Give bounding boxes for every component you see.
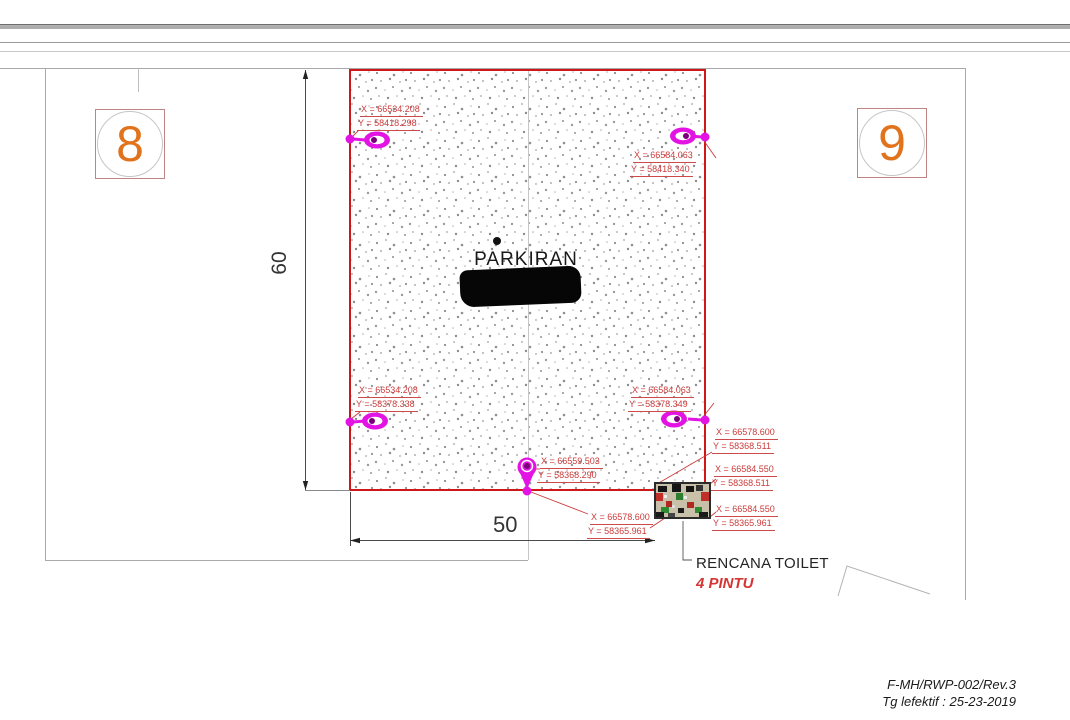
- toilet-plan: [655, 483, 710, 518]
- coord-label-toilet-top-left: X = 66578.600 Y = 58368.511: [712, 428, 778, 456]
- dimension-width-label: 50: [493, 512, 517, 538]
- reference-dot: [493, 237, 501, 245]
- coord-x: X = 66559.503: [540, 457, 603, 469]
- coord-x: X = 66584.063: [631, 386, 694, 398]
- coord-y: Y = 58368.290: [537, 471, 600, 483]
- doc-code: F-MH/RWP-002/Rev.3: [866, 677, 1016, 694]
- coord-y: Y = 58378.338: [355, 400, 418, 412]
- coord-label-parking-bottom-right: X = 66584.063 Y = 58378.349: [628, 386, 694, 414]
- coord-x: X = 66534.208: [360, 105, 423, 117]
- parcel-number-left: 8: [96, 110, 164, 178]
- coord-label-parking-top-left: X = 66534.208 Y = 58418.298: [357, 105, 423, 133]
- coord-y: Y = 58368.511: [712, 442, 774, 454]
- coord-y: Y = 58418.340: [630, 165, 693, 177]
- effective-date: Tg lefektif : 25-23-2019: [866, 694, 1016, 711]
- coord-y: Y = 58378.349: [628, 400, 691, 412]
- parcel-marker-9: 9: [857, 108, 927, 178]
- coord-y: Y = 58368.511: [711, 479, 773, 491]
- coord-label-parking-bottom-left: X = 66534.208 Y = 58378.338: [355, 386, 421, 414]
- coord-label-parking-top-right: X = 66584.063 Y = 58418.340: [630, 151, 696, 179]
- coord-label-parking-bottom-center: X = 66559.503 Y = 58368.290: [537, 457, 603, 485]
- coord-x: X = 66584.550: [715, 505, 778, 517]
- drawing-sheet: 8 9 60 50 PARKIRAN X = 66534.208 Y = 584…: [0, 0, 1070, 720]
- toilet-subtitle: 4 PINTU: [696, 575, 754, 592]
- coord-label-toilet-bottom-right: X = 66584.550 Y = 58365.961: [712, 505, 778, 533]
- coord-label-toilet-top-right: X = 66584.550 Y = 58368.511: [711, 465, 777, 493]
- coord-x: X = 66578.600: [715, 428, 778, 440]
- toilet-title: RENCANA TOILET: [696, 555, 829, 572]
- wall-lines: [0, 24, 1070, 52]
- parcel-marker-8: 8: [95, 109, 165, 179]
- coord-y: Y = 58365.961: [587, 527, 650, 539]
- dimension-height-label: 60: [268, 246, 298, 280]
- coord-x: X = 66534.208: [358, 386, 421, 398]
- redaction-blob: [459, 265, 581, 307]
- coord-label-toilet-bottom-left: X = 66578.600 Y = 58365.961: [587, 513, 653, 541]
- coord-y: Y = 58418.298: [357, 119, 420, 131]
- coord-x: X = 66584.550: [714, 465, 777, 477]
- title-block: F-MH/RWP-002/Rev.3 Tg lefektif : 25-23-2…: [866, 677, 1016, 711]
- parcel-number-right: 9: [858, 109, 926, 177]
- coord-y: Y = 58365.961: [712, 519, 775, 531]
- coord-x: X = 66578.600: [590, 513, 653, 525]
- coord-x: X = 66584.063: [633, 151, 696, 163]
